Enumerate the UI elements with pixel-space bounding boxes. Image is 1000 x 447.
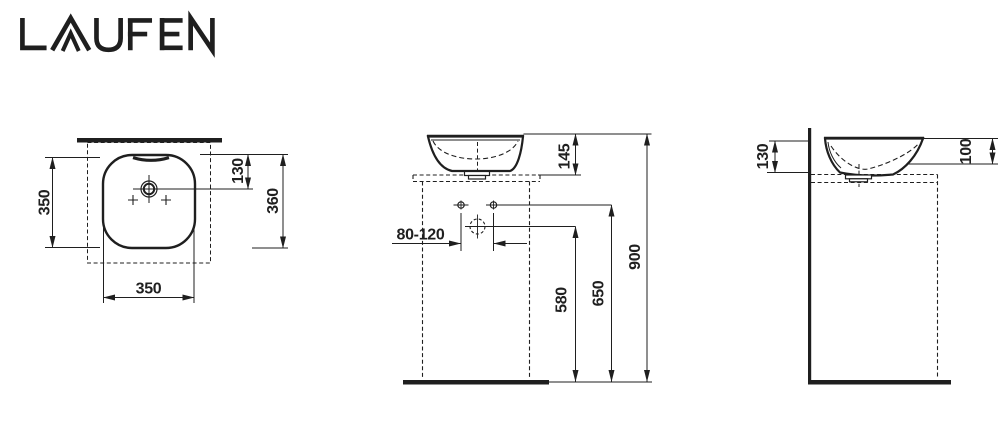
bowl-rim-edge-side — [828, 142, 841, 168]
drawing-canvas: LAUFEN — [0, 0, 1000, 447]
drain-fitting-front — [465, 172, 490, 180]
logo-letter-n — [191, 18, 213, 50]
dim-label-drain-height: 580 — [554, 287, 571, 313]
dim-label-tap-range: 80-120 — [396, 227, 444, 244]
waste-drain-symbol — [465, 215, 576, 239]
side-view: 130 100 — [755, 128, 998, 385]
logo-letter-f — [128, 20, 152, 50]
dim-top-depth-with-wall: 360 — [252, 155, 288, 249]
dim-bowl-height: 145 — [524, 134, 652, 175]
dim-top-width: 350 — [104, 228, 195, 303]
top-view: 350 130 360 350 — [37, 138, 288, 303]
dim-tap-range: 80-120 — [392, 213, 527, 251]
dim-drain-height: 580 — [554, 227, 576, 382]
drain-fitting-side — [846, 175, 872, 182]
counter-dashed-side — [811, 175, 938, 380]
dimensional-drawing-page: LAUFEN — [0, 0, 1000, 447]
dim-side-back-height: 130 — [755, 141, 810, 173]
dim-top-depth: 350 — [37, 158, 100, 248]
dim-label-rim-height: 900 — [627, 244, 644, 270]
dim-label-width: 350 — [136, 281, 162, 298]
dim-label-depth-outer: 350 — [37, 189, 54, 215]
fixing-hole-left — [454, 201, 469, 210]
logo-letter-l — [22, 18, 46, 48]
wall-line-side — [808, 128, 811, 382]
floor-line-side — [808, 380, 951, 385]
bowl-outline-front — [428, 137, 523, 172]
front-view: 80-120 145 580 650 900 — [392, 134, 652, 385]
dim-label-drain-from-back: 130 — [230, 158, 247, 184]
overflow-slot — [133, 158, 169, 161]
fixing-hole-right — [486, 201, 612, 210]
dim-label-bowl-height: 145 — [557, 143, 574, 169]
logo-letter-a-arrow — [63, 33, 79, 51]
dim-label-fixing-height: 650 — [591, 280, 608, 306]
logo-letter-u — [96, 18, 120, 50]
bowl-outline-side — [825, 139, 923, 176]
dim-label-side-back-height: 130 — [755, 143, 772, 169]
dim-top-drain-offset: 130 — [200, 155, 288, 190]
wall-line — [77, 138, 222, 143]
laufen-logo — [22, 18, 212, 51]
dim-label-side-front-height: 100 — [958, 138, 975, 164]
dim-rim-height: 900 — [627, 134, 647, 382]
dim-label-depth-with-wall: 360 — [265, 188, 282, 214]
bowl-inner-dashed-front — [433, 141, 518, 159]
logo-letter-e — [160, 18, 183, 50]
floor-line-front — [403, 380, 549, 385]
dim-fixing-height: 650 — [591, 205, 612, 382]
